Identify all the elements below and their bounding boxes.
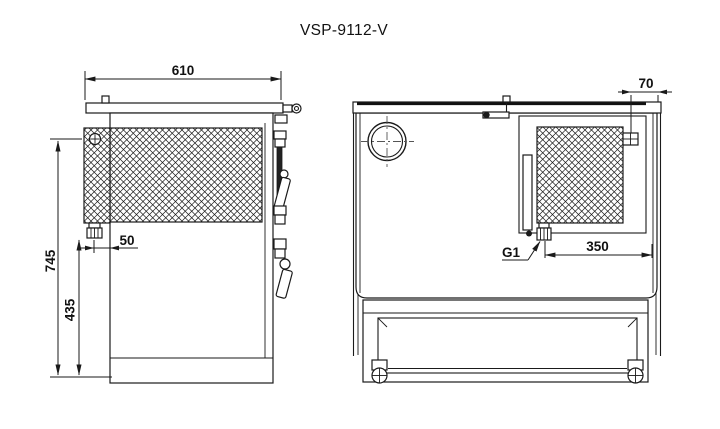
dim-width-610: 610 [85, 63, 281, 100]
lid-handle-stub [283, 105, 292, 112]
strip-bolt [526, 231, 532, 237]
door-handle-upper [274, 177, 291, 209]
heat-exchanger-side [84, 128, 262, 223]
hinge-lower [274, 239, 286, 249]
dim-350-label: 350 [586, 239, 609, 254]
dim-610-label: 610 [172, 63, 195, 78]
lid-pin-side [102, 96, 109, 103]
fitting-top-right [623, 133, 638, 145]
lid-pin-front [503, 96, 510, 102]
dim-435-label: 435 [63, 298, 78, 321]
dim-70-label: 70 [638, 76, 653, 91]
technical-drawing-page: VSP-9112-V [0, 0, 720, 429]
door-hardware-upper [274, 131, 291, 224]
dim-height-435: 435 [63, 240, 80, 375]
door-handle-lower [276, 269, 293, 299]
hinge-upper-bottom [274, 206, 286, 215]
hinge-upper-top [274, 131, 286, 139]
handle-knob-upper [280, 170, 288, 178]
base-front [363, 300, 648, 383]
dim-745-label: 745 [43, 249, 58, 272]
handle-knob-lower [280, 259, 290, 269]
dim-50-label: 50 [119, 233, 134, 248]
lid-handle-ring [292, 104, 301, 113]
drawing-title: VSP-9112-V [300, 22, 388, 39]
stove-dimension-drawing: VSP-9112-V [0, 0, 720, 429]
front-view: 70 350 G1 [353, 76, 672, 383]
side-view: 610 745 435 50 [43, 63, 301, 383]
caster-wheel-left [372, 360, 387, 383]
g1-fitting [537, 223, 551, 240]
pipe-fitting-side [87, 223, 102, 238]
door-hardware-lower [274, 239, 293, 299]
exchanger-side-strip [523, 155, 532, 230]
g1-label: G1 [502, 245, 521, 260]
heat-exchanger-hatch-front [537, 127, 623, 223]
caster-wheel-right [628, 360, 643, 383]
lid-bracket [275, 115, 287, 123]
heat-exchanger-hatch-side [110, 128, 262, 222]
